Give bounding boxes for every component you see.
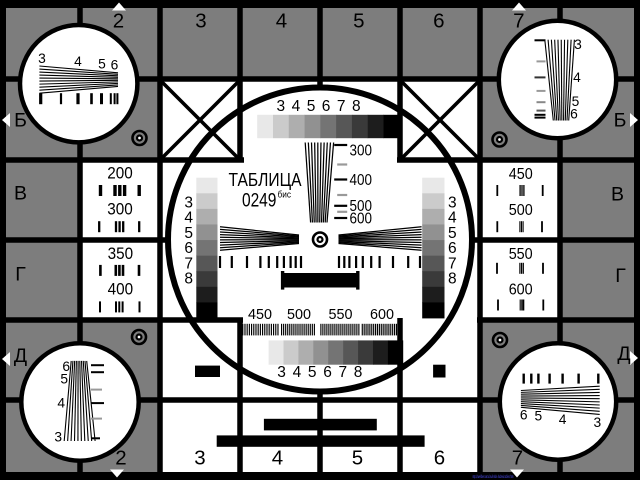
svg-text:6: 6 (434, 447, 445, 470)
svg-text:3: 3 (54, 429, 62, 444)
svg-text:4: 4 (74, 54, 82, 69)
svg-text:5: 5 (353, 10, 364, 33)
svg-text:6: 6 (433, 10, 444, 33)
svg-text:6: 6 (322, 98, 331, 115)
svg-text:600: 600 (350, 210, 373, 227)
svg-text:5: 5 (307, 98, 316, 115)
svg-text:450: 450 (509, 166, 533, 183)
svg-text:Д: Д (14, 345, 27, 367)
svg-text:550: 550 (329, 307, 353, 323)
svg-text:8: 8 (354, 364, 363, 381)
svg-text:3: 3 (594, 415, 602, 430)
svg-text:400: 400 (108, 280, 134, 299)
svg-text:6: 6 (323, 364, 332, 381)
svg-text:3: 3 (277, 364, 286, 381)
svg-text:450: 450 (248, 307, 272, 323)
svg-text:600: 600 (370, 307, 394, 323)
svg-text:350: 350 (108, 244, 134, 263)
svg-text:3: 3 (195, 10, 206, 33)
svg-text:5: 5 (535, 408, 543, 423)
svg-text:6: 6 (570, 107, 578, 122)
svg-text:0249: 0249 (242, 189, 277, 211)
svg-text:3: 3 (38, 51, 46, 66)
svg-text:4: 4 (559, 412, 567, 427)
svg-text:5: 5 (352, 447, 363, 470)
svg-text:500: 500 (287, 307, 311, 323)
svg-text:Г: Г (15, 264, 26, 286)
svg-text:8: 8 (448, 271, 457, 288)
svg-text:4: 4 (272, 447, 283, 470)
svg-text:3: 3 (276, 98, 285, 115)
svg-text:6: 6 (111, 58, 119, 73)
svg-text:300: 300 (107, 200, 133, 219)
svg-text:Д: Д (617, 343, 630, 365)
svg-text:200: 200 (107, 164, 133, 183)
svg-text:550: 550 (509, 246, 533, 263)
svg-text:4: 4 (57, 396, 65, 411)
svg-text:8: 8 (184, 271, 193, 288)
svg-text:Б: Б (14, 109, 27, 131)
svg-text:В: В (14, 183, 27, 205)
svg-text:400: 400 (350, 172, 373, 189)
svg-text:3: 3 (194, 447, 205, 470)
svg-text:5: 5 (60, 372, 68, 387)
svg-text:8: 8 (352, 98, 361, 115)
svg-text:6: 6 (520, 407, 528, 422)
svg-text:4: 4 (292, 98, 301, 115)
svg-text:300: 300 (350, 143, 373, 160)
svg-text:4: 4 (276, 10, 287, 33)
svg-text:ТАБЛИЦА: ТАБЛИЦА (229, 170, 302, 190)
svg-text:500: 500 (509, 202, 533, 219)
svg-text:4: 4 (573, 70, 581, 85)
svg-text:3: 3 (574, 37, 582, 52)
svg-text:Б: Б (614, 109, 627, 131)
svg-text:7: 7 (512, 447, 523, 470)
svg-text:В: В (611, 184, 624, 206)
svg-text:7: 7 (513, 10, 524, 33)
svg-text:7: 7 (337, 98, 346, 115)
svg-text:2: 2 (113, 10, 124, 33)
svg-text:бис: бис (278, 190, 292, 200)
svg-text:nttp;//aveliber.narod.ru/insid: nttp;//aveliber.narod.ru/inside.hu/zeui.… (473, 474, 514, 479)
svg-text:5: 5 (308, 364, 317, 381)
svg-text:4: 4 (293, 364, 302, 381)
svg-text:600: 600 (509, 281, 533, 298)
svg-text:2: 2 (115, 447, 126, 470)
svg-text:Г: Г (615, 265, 626, 287)
svg-text:7: 7 (338, 364, 347, 381)
svg-text:5: 5 (98, 57, 106, 72)
